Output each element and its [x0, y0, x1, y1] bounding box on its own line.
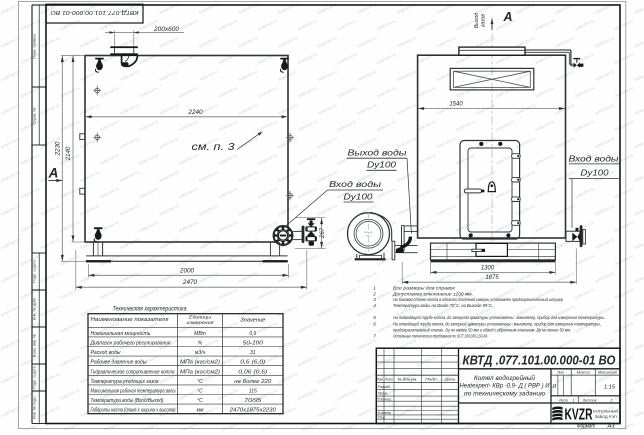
svg-text:Heatexpert- КВр -0,9- Д ( РВР: Heatexpert- КВр -0,9- Д ( РВР ) И — [460, 384, 551, 390]
svg-text:1875: 1875 — [485, 275, 499, 281]
svg-text:Диапазон рабочего регулировани: Диапазон рабочего регулирования — [90, 341, 171, 347]
svg-text:1300: 1300 — [481, 265, 495, 271]
svg-text:°С: °С — [197, 398, 203, 404]
svg-text:Лит.: Лит. — [556, 371, 565, 375]
svg-text:Инв. № подл.: Инв. № подл. — [32, 395, 36, 419]
svg-text:Лист: Лист — [558, 399, 568, 403]
svg-text:Лист: Лист — [384, 377, 394, 381]
svg-text:ЗАВОД РЭП: ЗАВОД РЭП — [595, 415, 618, 419]
svg-text:МВт: МВт — [194, 331, 206, 337]
svg-text:Подп. и дата: Подп. и дата — [32, 365, 36, 388]
svg-text:м3/ч: м3/ч — [195, 350, 206, 356]
svg-text:Инв. № дубл.: Инв. № дубл. — [32, 297, 36, 321]
svg-text:Т.контр.: Т.контр. — [378, 397, 392, 401]
svg-text:Максимальная рабочая температу: Максимальная рабочая температура воды — [91, 389, 176, 395]
svg-text:Масштаб: Масштаб — [598, 371, 618, 375]
svg-text:Листов: Листов — [581, 399, 596, 403]
svg-text:0,06 (0,6): 0,06 (0,6) — [238, 369, 267, 375]
svg-text:1540: 1540 — [449, 102, 463, 108]
svg-text:Вход воды: Вход воды — [329, 179, 382, 189]
svg-text:4: 4 — [373, 303, 376, 308]
svg-text:мм: мм — [197, 408, 204, 414]
svg-text:Гидравлическое сопротивление к: Гидравлическое сопротивление котла — [91, 369, 175, 375]
svg-text:Пров.: Пров. — [378, 392, 388, 396]
svg-text:Взам. инв. №: Взам. инв. № — [32, 334, 36, 358]
svg-text:6: 6 — [373, 322, 376, 327]
svg-text:ВЦ14-46: ВЦ14-46 — [364, 232, 373, 234]
svg-text:по техническому заданию: по техническому заданию — [464, 391, 546, 397]
svg-text:°С: °С — [197, 389, 203, 395]
svg-text:На боковой стенке котла в обла: На боковой стенке котла в области топочн… — [393, 296, 563, 302]
svg-text:2240: 2240 — [187, 109, 203, 116]
svg-text:Котел водогрейный: Котел водогрейный — [474, 375, 536, 382]
svg-text:50-100: 50-100 — [243, 341, 263, 347]
svg-text:°С: °С — [197, 379, 203, 385]
svg-text:5: 5 — [373, 315, 376, 320]
svg-text:А: А — [502, 10, 512, 24]
svg-text:газов: газов — [481, 14, 487, 28]
svg-text:0,6 (6,0): 0,6 (6,0) — [240, 360, 265, 366]
svg-text:Техническая характеристика: Техническая характеристика — [113, 305, 187, 312]
svg-text:не более 220: не более 220 — [234, 379, 271, 385]
svg-text:Номинальная мощность: Номинальная мощность — [91, 331, 151, 337]
svg-text:Формат: Формат — [577, 424, 595, 430]
svg-text:Dy100: Dy100 — [581, 167, 609, 177]
svg-text:KVZR: KVZR — [565, 407, 593, 424]
svg-text:Подп.: Подп. — [425, 377, 438, 381]
svg-text:Н.контр.: Н.контр. — [378, 411, 392, 415]
svg-text:Вход воды: Вход воды — [569, 154, 620, 164]
svg-text:КОТЕЛЬНЫЙ: КОТЕЛЬНЫЙ — [593, 409, 619, 413]
svg-text:КВТД .077.101.00.000-01 ВО: КВТД .077.101.00.000-01 ВО — [463, 353, 616, 367]
svg-text:N докум.: N докум. — [398, 377, 418, 381]
svg-text:2: 2 — [372, 291, 376, 296]
svg-text:см. п. 3: см. п. 3 — [192, 142, 235, 153]
svg-text:2470: 2470 — [182, 279, 198, 286]
svg-text:2000: 2000 — [179, 267, 195, 274]
svg-text:%: % — [198, 341, 203, 347]
svg-text:предохранительный клапан. Dy н: предохранительный клапан. Dy не менее 50… — [393, 327, 571, 333]
svg-text:31: 31 — [250, 350, 256, 356]
svg-text:3: 3 — [373, 297, 376, 302]
svg-text:Единицы: Единицы — [189, 314, 212, 320]
svg-text:Изм.: Изм. — [377, 377, 384, 381]
svg-text:МПа (кгс/см2): МПа (кгс/см2) — [180, 369, 220, 375]
svg-text:Справ. №: Справ. № — [32, 107, 36, 124]
svg-text:200х600: 200х600 — [153, 26, 180, 33]
svg-text:267: 267 — [320, 227, 326, 239]
svg-text:Все размеры для справок: Все размеры для справок — [393, 285, 456, 290]
svg-text:Значение: Значение — [240, 318, 265, 324]
svg-text:1: 1 — [572, 399, 574, 403]
svg-text:2140: 2140 — [65, 146, 72, 161]
svg-text:На отводящей трубе котла, до з: На отводящей трубе котла, до запорной ар… — [393, 321, 601, 327]
svg-text:А3: А3 — [606, 424, 614, 430]
svg-text:Габариты котла (длина х ширина: Габариты котла (длина х ширина х высота) — [91, 408, 176, 414]
svg-text:Dy100: Dy100 — [367, 160, 396, 170]
svg-text:Рабочее давление воды: Рабочее давление воды — [91, 360, 147, 366]
svg-text:Допустимое отклонение ±100 мм.: Допустимое отклонение ±100 мм. — [392, 291, 473, 296]
svg-text:Дата: Дата — [444, 377, 455, 381]
svg-text:Масса: Масса — [577, 371, 590, 375]
svg-text:Температура воды на Входе 70°С: Температура воды на Входе 70°С, на Выход… — [393, 303, 493, 308]
svg-text:Разраб.: Разраб. — [378, 385, 391, 389]
svg-text:МПа (кгс/см2): МПа (кгс/см2) — [180, 360, 220, 366]
svg-text:Температура воды (Вход/Выход): Температура воды (Вход/Выход) — [91, 398, 164, 404]
svg-text:0,9: 0,9 — [249, 331, 256, 337]
svg-text:Выход воды: Выход воды — [348, 148, 408, 158]
svg-text:Dy100: Dy100 — [344, 191, 373, 201]
svg-text:Остальные технические требован: Остальные технические требования по ОСТ … — [393, 333, 488, 338]
svg-text:7: 7 — [373, 333, 376, 338]
svg-text:КВТД.077.101.00.000-01 ВО: КВТД.077.101.00.000-01 ВО — [50, 9, 139, 15]
svg-text:Выход: Выход — [474, 13, 480, 29]
svg-text:А: А — [48, 166, 59, 181]
svg-text:2470х1875х2230: 2470х1875х2230 — [229, 408, 276, 414]
svg-text:Температура уходящих газов: Температура уходящих газов — [91, 379, 159, 385]
svg-text:115: 115 — [249, 389, 257, 395]
svg-text:Расход воды: Расход воды — [91, 350, 121, 356]
svg-text:Утв.: Утв. — [378, 416, 386, 420]
svg-text:№2,5: №2,5 — [366, 234, 372, 237]
svg-text:Наименование показателя: Наименование показателя — [91, 317, 169, 323]
svg-text:1: 1 — [373, 285, 376, 290]
svg-text:Подп. и дата: Подп. и дата — [32, 259, 36, 282]
svg-text:70/95: 70/95 — [244, 398, 261, 404]
svg-text:измерения: измерения — [187, 321, 214, 326]
svg-text:1:15: 1:15 — [604, 385, 616, 391]
svg-text:2230: 2230 — [54, 141, 61, 156]
svg-text:На подводящей трубе котла, до: На подводящей трубе котла, до запорной а… — [393, 314, 605, 320]
svg-text:Перв. примен.: Перв. примен. — [32, 33, 36, 58]
svg-text:И: И — [553, 384, 557, 390]
